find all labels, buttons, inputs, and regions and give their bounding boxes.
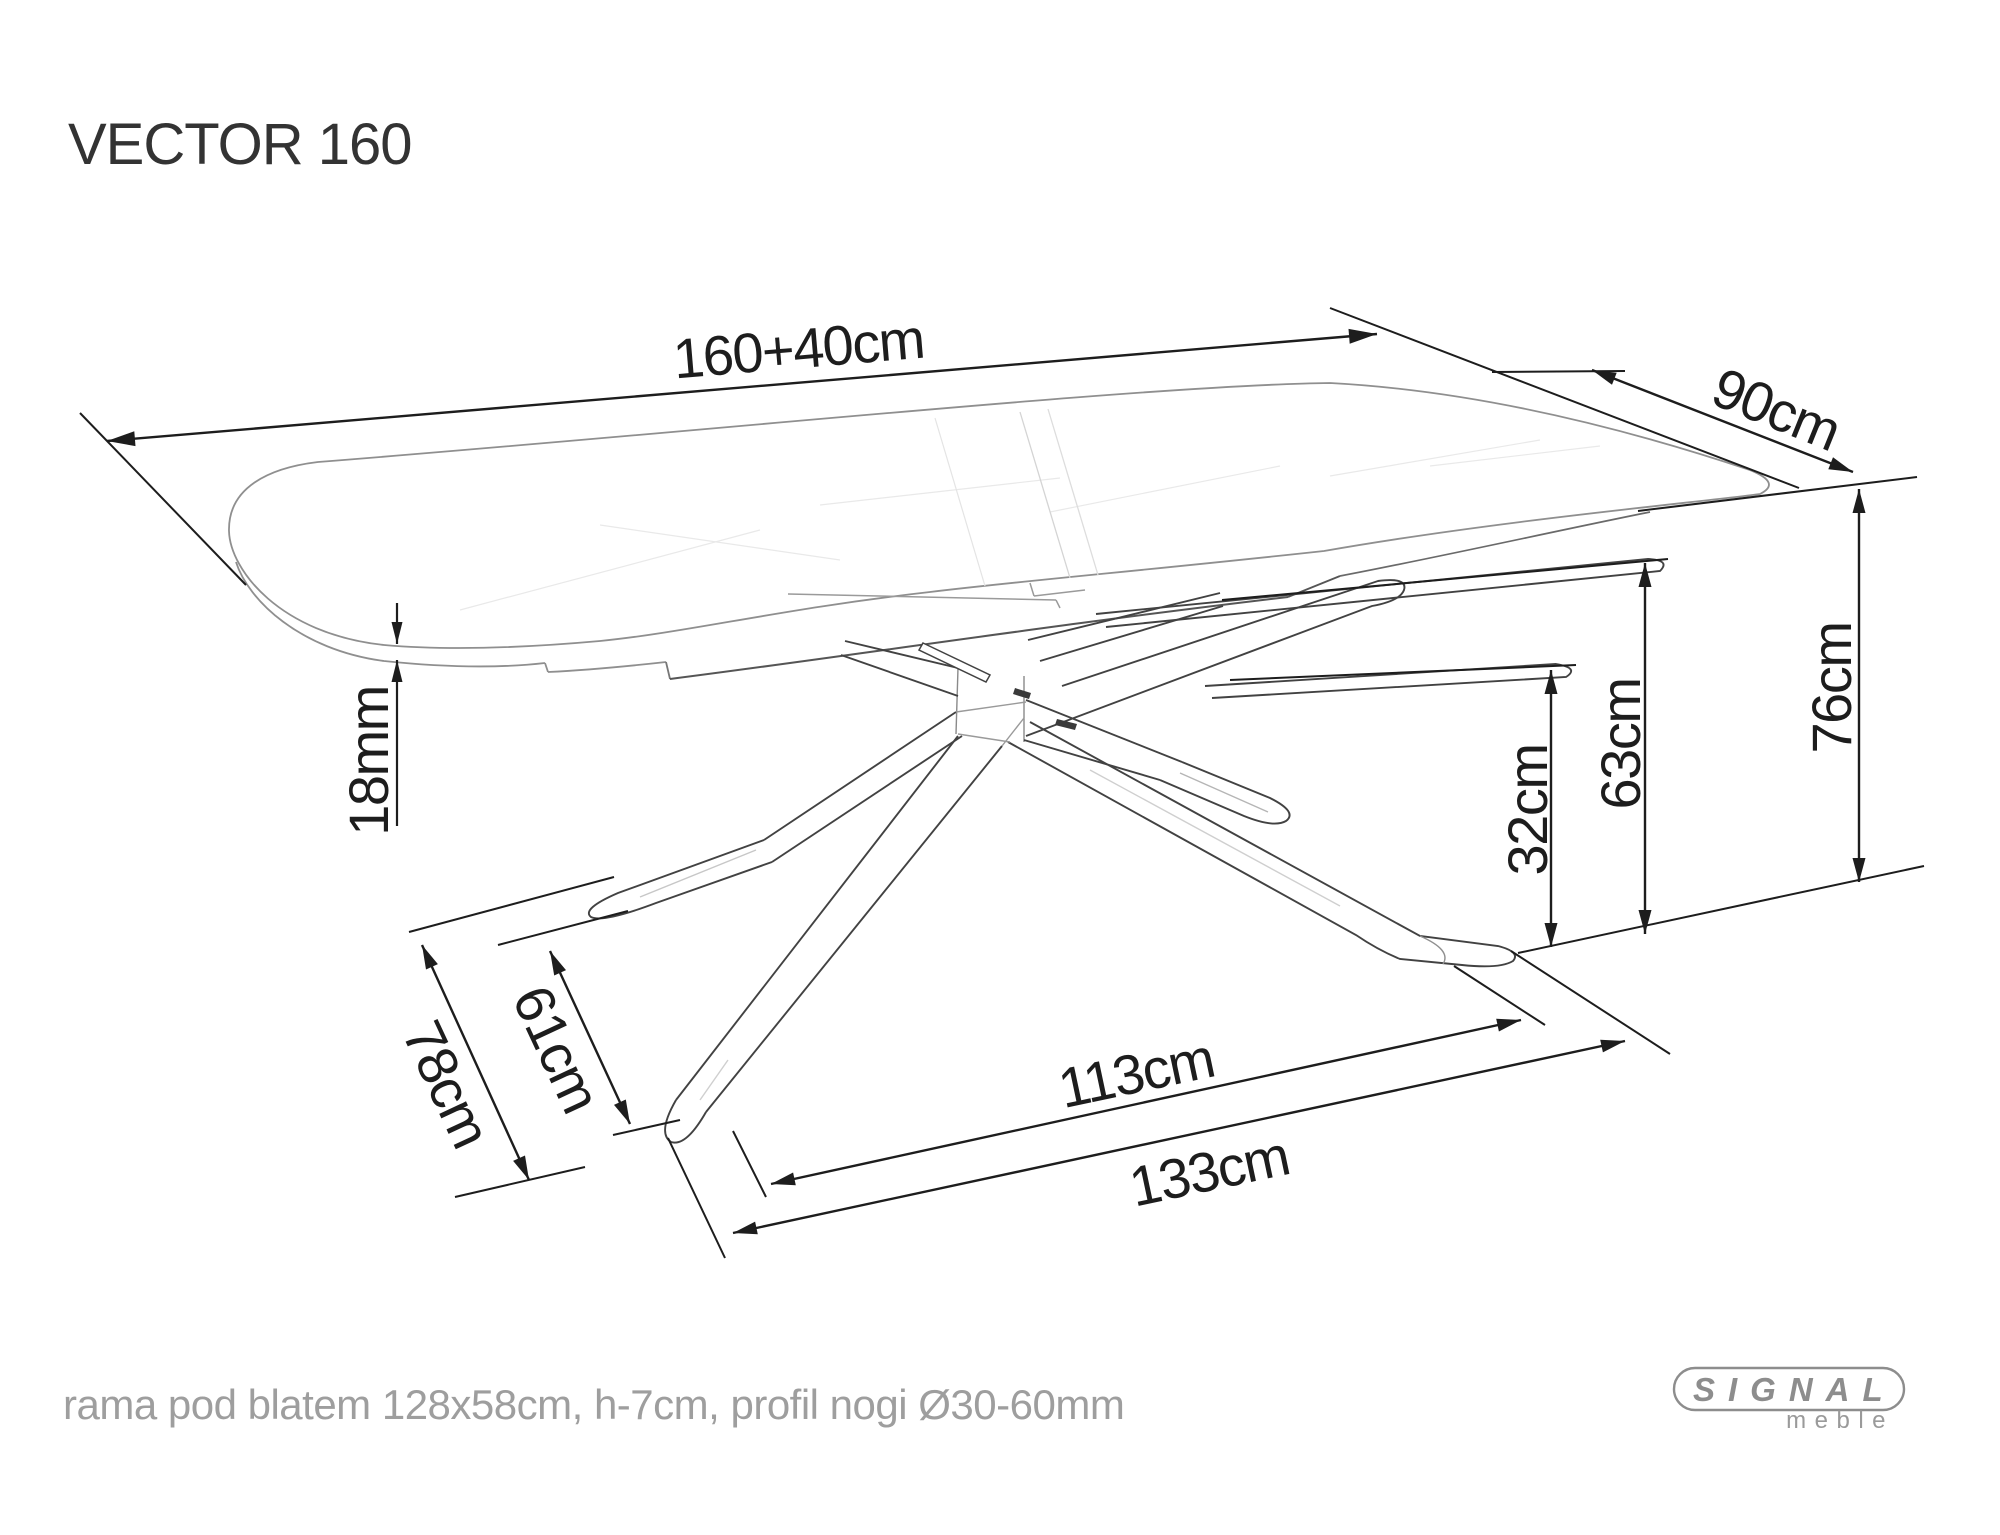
svg-text:VECTOR 160: VECTOR 160 <box>68 112 412 177</box>
svg-text:32cm: 32cm <box>1496 745 1559 876</box>
svg-text:63cm: 63cm <box>1589 679 1652 810</box>
svg-text:meble: meble <box>1786 1407 1894 1434</box>
svg-text:76cm: 76cm <box>1800 623 1863 754</box>
svg-text:18mm: 18mm <box>337 686 400 836</box>
svg-text:rama pod blatem 128x58cm, h-7c: rama pod blatem 128x58cm, h-7cm, profil … <box>63 1381 1124 1428</box>
svg-text:SIGNAL: SIGNAL <box>1693 1371 1896 1408</box>
